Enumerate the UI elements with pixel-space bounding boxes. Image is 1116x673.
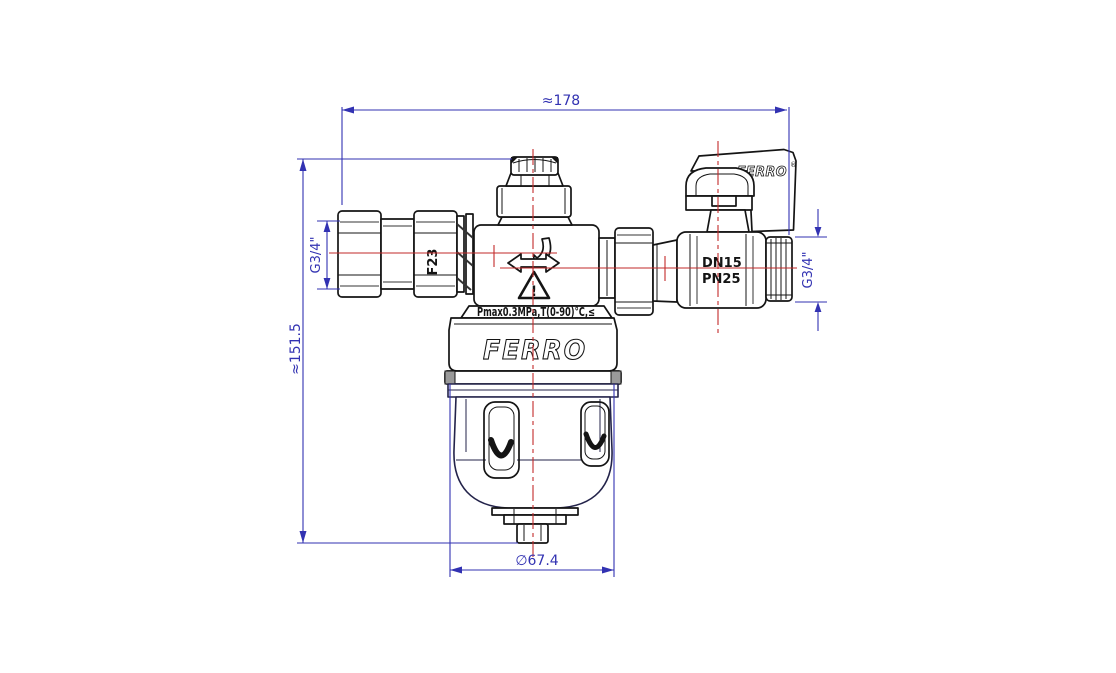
- air-vent: [497, 157, 572, 225]
- spec-marking: Pmax0.3MPa,T(0-90)°C,≤: [477, 305, 595, 319]
- handle-logo-registered-mark: ®: [790, 161, 797, 169]
- filter-valve-drawing: F23 ! Pmax0.3MPa,T(0-90)°C,≤: [0, 0, 1116, 673]
- overall-height-value: ≈151.5: [288, 323, 304, 375]
- inlet-thread-value: G3/4": [309, 237, 324, 274]
- overall-width-value: ≈178: [542, 93, 580, 109]
- air-vent-body: [497, 186, 571, 217]
- body-logo: FERRO: [483, 335, 587, 366]
- inlet-nut-left: [338, 211, 381, 297]
- filter-body: ! Pmax0.3MPa,T(0-90)°C,≤: [461, 225, 615, 319]
- technical-drawing-canvas: F23 ! Pmax0.3MPa,T(0-90)°C,≤: [0, 0, 1116, 673]
- inlet-union-barrel: [381, 219, 414, 289]
- dimension-outlet-thread: G3/4": [795, 209, 827, 331]
- dimension-inlet-thread: G3/4": [309, 221, 340, 289]
- valve-male-thread: [766, 237, 792, 301]
- valve-dn-marking: DN15: [702, 256, 742, 271]
- bowl-diameter-value: ∅67.4: [515, 553, 558, 569]
- inlet-gasket-stack: [457, 214, 473, 294]
- valve-neck: [707, 210, 749, 232]
- inlet-union: F23: [338, 211, 473, 297]
- ball-valve: FERRO ® DN15 PN25: [677, 150, 797, 309]
- valve-pn-marking: PN25: [702, 272, 741, 287]
- outlet-union: [615, 228, 677, 315]
- drain-plug: [492, 508, 578, 543]
- warning-exclamation: !: [531, 284, 537, 300]
- outlet-thread-value: G3/4": [801, 252, 816, 289]
